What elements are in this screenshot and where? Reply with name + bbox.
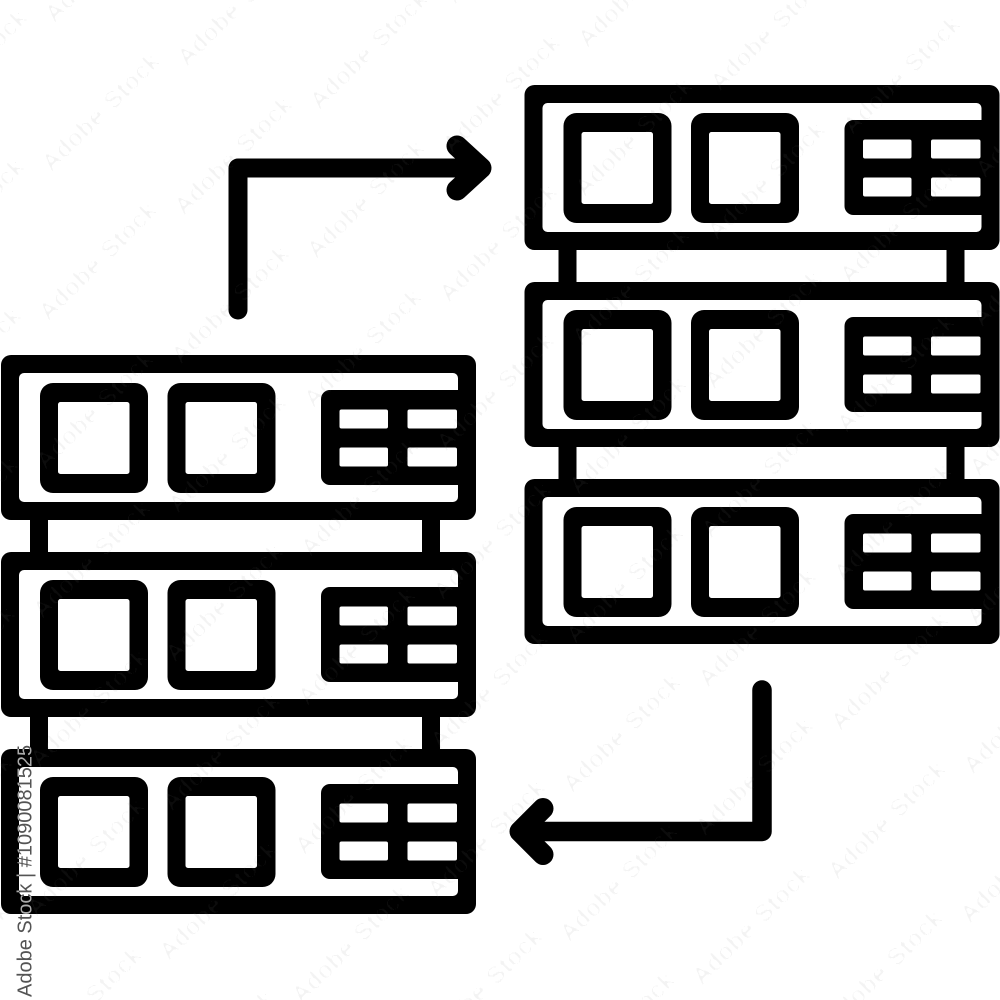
- svg-text:Adobe Stock | #1090081525: Adobe Stock | #1090081525: [15, 745, 37, 997]
